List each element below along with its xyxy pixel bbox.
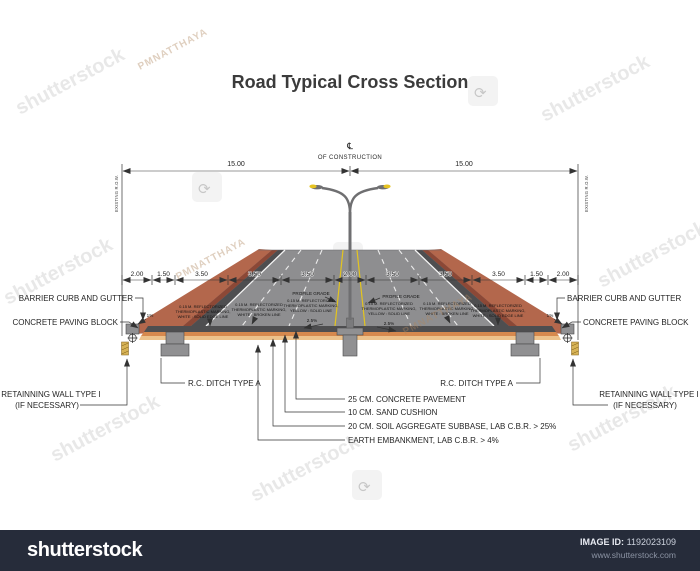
image-id-value: 1192023109 xyxy=(627,537,676,547)
svg-text:WHITE : SOLID EDGE LINE: WHITE : SOLID EDGE LINE xyxy=(473,313,524,318)
cross-section-diagram: shutterstock shutterstock shutterstock s… xyxy=(0,0,700,571)
barrier-curb-right xyxy=(561,324,574,334)
footer-bar: shutterstock IMAGE ID: 1192023109 www.sh… xyxy=(0,530,700,571)
label-retaining-wall-left-2: (IF NECESSARY) xyxy=(15,401,79,410)
road-dim: 1.50 xyxy=(530,271,543,278)
road-dim: 3.50 xyxy=(301,271,314,278)
label-side-slope-right: 1% xyxy=(547,313,554,318)
dim-15-left: 15.00 xyxy=(227,161,245,168)
road-dim: 3.50 xyxy=(248,271,261,278)
row-label-left: EXISTING R.O.W. xyxy=(114,175,119,212)
label-paving-block-right: CONCRETE PAVING BLOCK xyxy=(583,318,689,327)
centerline-label: OF CONSTRUCTION xyxy=(318,155,382,161)
label-layer-embankment: EARTH EMBANKMENT, LAB C.B.R. > 4% xyxy=(348,436,499,445)
refresh-arrows-icon: ⟳ xyxy=(474,85,487,102)
centerline-callout: ℄ OF CONSTRUCTION xyxy=(318,141,382,161)
page-title: Road Typical Cross Section xyxy=(232,72,469,92)
refresh-arrows-icon: ⟳ xyxy=(358,479,371,496)
median-footing xyxy=(337,328,363,356)
label-ditch-right: R.C. DITCH TYPE A xyxy=(440,379,513,388)
retaining-wall-left xyxy=(122,342,129,355)
centerline-symbol: ℄ xyxy=(346,141,353,151)
watermark-text: shutterstock xyxy=(537,50,654,126)
svg-text:WHITE : BROKEN LINE: WHITE : BROKEN LINE xyxy=(237,312,280,317)
svg-text:YELLOW : SOLID LINE: YELLOW : SOLID LINE xyxy=(290,308,332,313)
label-barrier-curb-right: BARRIER CURB AND GUTTER xyxy=(567,294,681,303)
survey-marker-icon xyxy=(128,333,138,343)
pole-arm-left xyxy=(322,188,350,214)
label-layer-pavement: 25 CM. CONCRETE PAVEMENT xyxy=(348,395,466,404)
label-layer-subbase: 20 CM. SOIL AGGREGATE SUBBASE, LAB C.B.R… xyxy=(348,422,556,431)
stock-image-preview: shutterstock shutterstock shutterstock s… xyxy=(0,0,700,571)
shutterstock-logo: shutterstock xyxy=(27,539,144,561)
label-paving-block-left: CONCRETE PAVING BLOCK xyxy=(13,318,119,327)
road-dim: 1.50 xyxy=(157,271,170,278)
lamp-right xyxy=(383,185,390,189)
svg-text:WHITE : SOLID EDGE LINE: WHITE : SOLID EDGE LINE xyxy=(178,314,229,319)
retaining-wall-right xyxy=(572,342,579,355)
dim-15-right: 15.00 xyxy=(455,161,473,168)
refresh-arrows-icon: ⟳ xyxy=(198,181,211,198)
road-dim: 3.50 xyxy=(492,271,505,278)
road-dim: 2.00 xyxy=(557,271,570,278)
road-dim: 2.00 xyxy=(131,271,144,278)
row-label-right: EXISTING R.O.W. xyxy=(584,175,589,212)
watermark-text: shutterstock xyxy=(594,216,700,292)
barrier-curb-left xyxy=(126,324,139,334)
author-watermark: PMNATTHAYA xyxy=(136,27,210,73)
label-retaining-wall-left: RETAINNING WALL TYPE I xyxy=(1,390,101,399)
website-url: www.shutterstock.com xyxy=(590,550,676,560)
label-ditch-left: R.C. DITCH TYPE A xyxy=(188,379,261,388)
label-retaining-wall-right-2: (IF NECESSARY) xyxy=(613,401,677,410)
road-dim: 3.50 xyxy=(386,271,399,278)
label-layer-sand: 10 CM. SAND CUSHION xyxy=(348,408,438,417)
label-cross-slope-right: 2.5% xyxy=(384,321,394,326)
label-profile-grade-right: PROFILE GRADE xyxy=(382,294,419,299)
svg-text:YELLOW : SOLID LINE: YELLOW : SOLID LINE xyxy=(368,311,410,316)
lamp-left xyxy=(309,185,316,189)
label-barrier-curb-left: BARRIER CURB AND GUTTER xyxy=(19,294,133,303)
label-side-slope-left: 1% xyxy=(147,313,154,318)
watermark-text: shutterstock xyxy=(247,430,364,506)
pole-arm-right xyxy=(350,188,378,214)
label-cross-slope-left: 2.5% xyxy=(307,318,317,323)
label-retaining-wall-right: RETAINNING WALL TYPE I xyxy=(599,390,699,399)
road-dim: 3.50 xyxy=(439,271,452,278)
label-profile-grade-left: PROFILE GRADE xyxy=(292,291,329,296)
image-id-label: IMAGE ID: xyxy=(580,537,624,547)
survey-marker-icon xyxy=(563,333,573,343)
watermark-text: shutterstock xyxy=(12,43,129,119)
road-dim: 2.00 xyxy=(344,271,357,278)
